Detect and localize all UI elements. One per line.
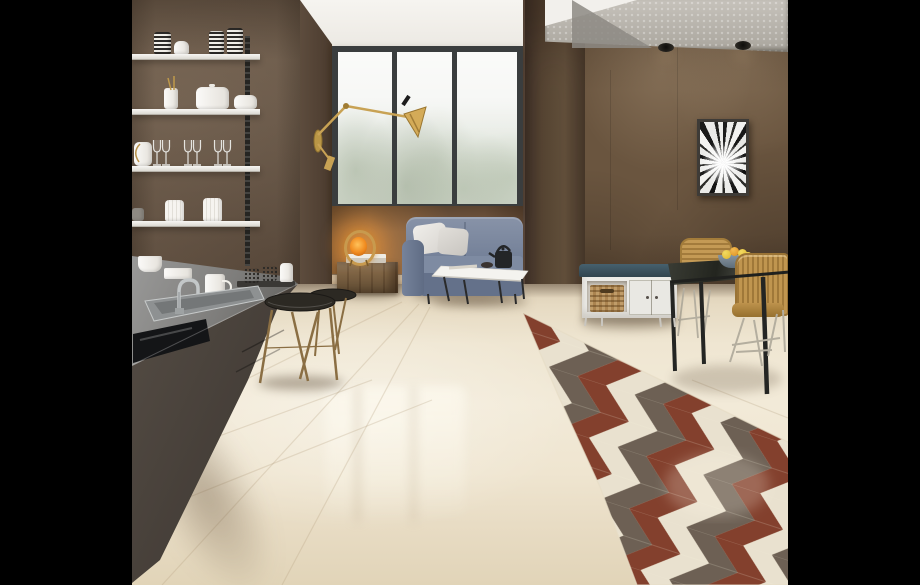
dining-table-legs (670, 272, 788, 394)
front-chair-legs (730, 310, 785, 366)
detail-overlay (132, 0, 788, 585)
utensils (168, 78, 171, 90)
lamp-finial (403, 96, 409, 105)
letterboxed-photo-stage (0, 0, 920, 585)
papers (449, 266, 477, 268)
sideboard-legs (585, 318, 675, 327)
wall-lamp (314, 96, 426, 171)
wine-glasses (153, 140, 231, 165)
bar-stool (260, 293, 337, 383)
small-bowl (481, 262, 493, 268)
interior-photo (132, 0, 788, 585)
teapot-handle (136, 144, 140, 162)
lamp-cone-shade (404, 107, 426, 137)
cooktop (133, 319, 210, 363)
coffee-table (432, 246, 528, 304)
